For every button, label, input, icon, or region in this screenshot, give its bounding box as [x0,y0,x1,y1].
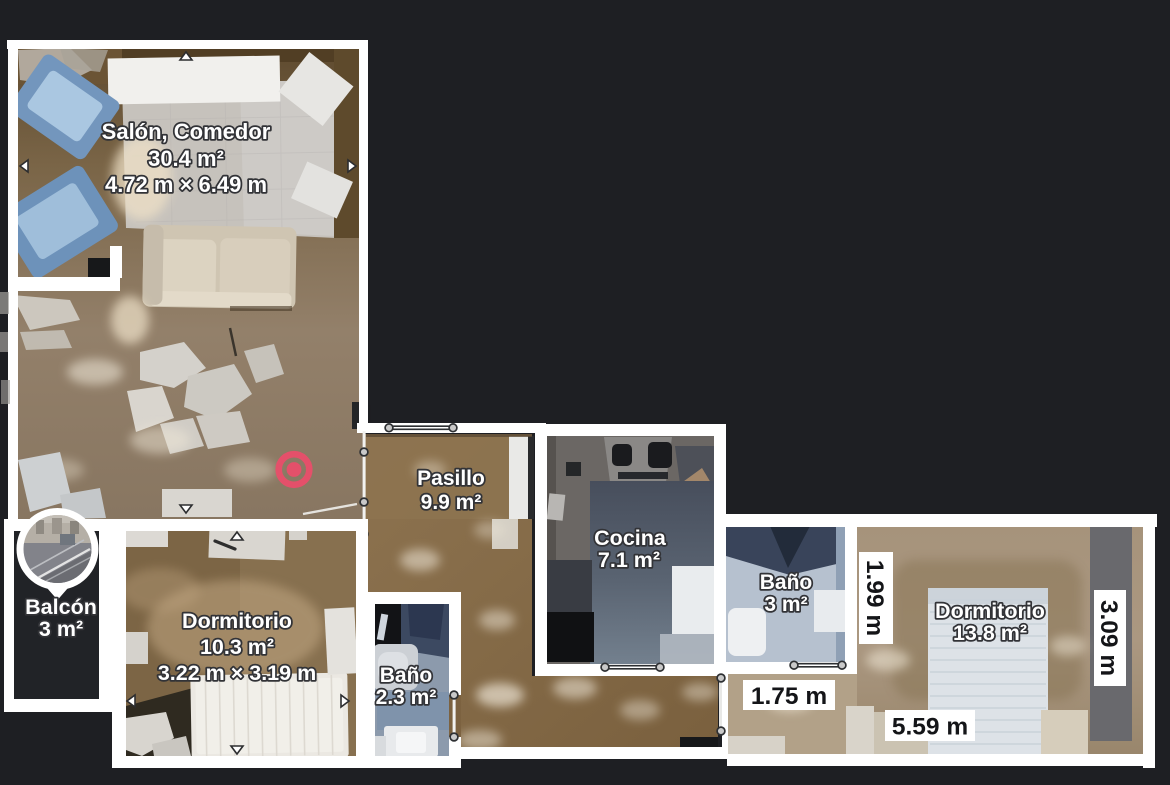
svg-text:Dormitorio: Dormitorio [182,609,292,633]
svg-text:Cocina: Cocina [594,526,667,550]
svg-text:3.22 m × 3.19 m: 3.22 m × 3.19 m [158,661,316,685]
svg-text:Baño: Baño [380,664,433,687]
svg-text:Baño: Baño [760,571,813,594]
svg-text:3.09 m: 3.09 m [1095,600,1122,676]
svg-text:2.3 m²: 2.3 m² [376,686,437,709]
svg-text:9.9 m²: 9.9 m² [421,491,482,514]
svg-text:1.75 m: 1.75 m [751,683,827,710]
svg-text:10.3 m²: 10.3 m² [200,635,274,659]
svg-text:1.99 m: 1.99 m [861,560,888,636]
svg-text:Balcón: Balcón [25,595,97,619]
svg-text:3 m²: 3 m² [39,617,83,641]
svg-text:7.1 m²: 7.1 m² [598,548,660,572]
svg-text:5.59 m: 5.59 m [892,714,968,741]
svg-text:Salón, Comedor: Salón, Comedor [102,119,271,144]
svg-text:Pasillo: Pasillo [417,467,485,490]
svg-text:13.8 m²: 13.8 m² [953,621,1027,645]
svg-text:Dormitorio: Dormitorio [935,599,1045,623]
svg-text:30.4 m²: 30.4 m² [148,146,224,171]
svg-text:3 m²: 3 m² [764,593,807,616]
svg-text:4.72 m × 6.49 m: 4.72 m × 6.49 m [105,172,267,197]
